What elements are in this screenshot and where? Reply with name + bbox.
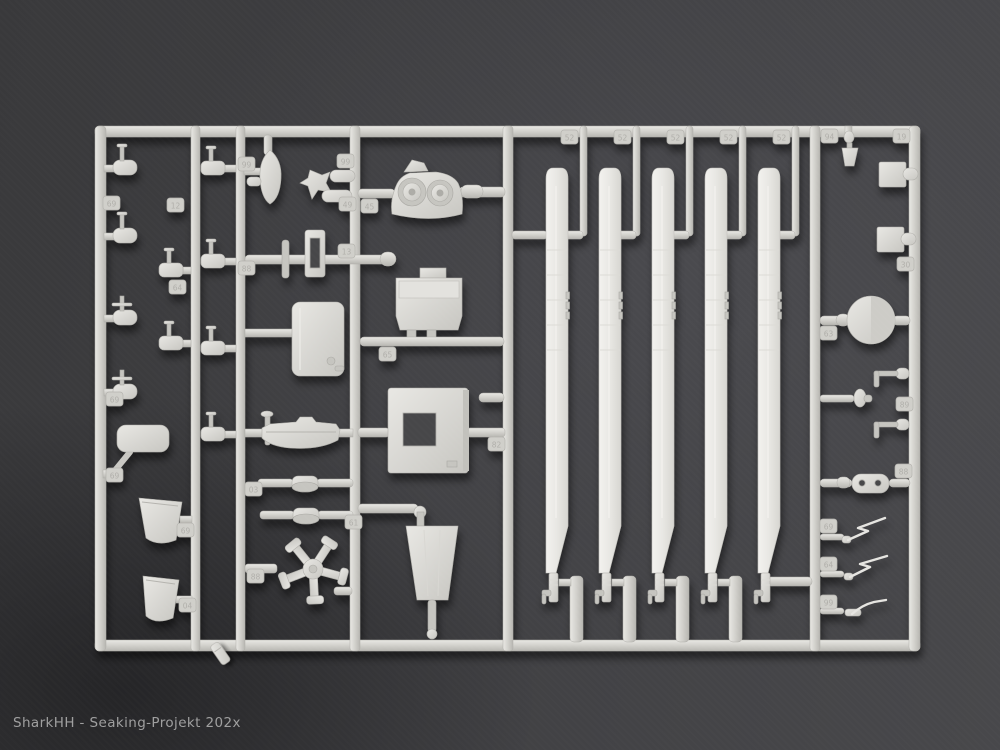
step-frame-part	[245, 230, 396, 278]
part-number-tab: 69	[103, 196, 120, 210]
part-number-tab: 13	[338, 244, 355, 258]
part-number-tab: 99	[337, 154, 354, 168]
svg-text:69: 69	[110, 472, 120, 481]
part-number-tab: 69	[106, 468, 123, 482]
svg-text:61: 61	[349, 519, 359, 528]
part-number-tab: 88	[238, 261, 255, 275]
part-number-tab: 52	[667, 130, 684, 144]
runner-d	[503, 126, 513, 651]
part-number-tab: 65	[379, 347, 396, 361]
part-number-tab: 64	[169, 280, 186, 294]
svg-text:88: 88	[251, 573, 261, 582]
sprue: 69 12 64 69 69 69 04 99 88 03 88 99 49 1…	[95, 126, 920, 651]
part-number-tab: 89	[896, 397, 913, 411]
svg-text:52: 52	[777, 134, 787, 143]
part-number-tab: 45	[361, 199, 378, 213]
part-number-tab: 99	[238, 157, 255, 171]
part-number-tab: 94	[821, 129, 838, 143]
part-number-tab: 19	[893, 129, 910, 143]
valve-part	[104, 212, 137, 243]
sprue-photo: 69 12 64 69 69 69 04 99 88 03 88 99 49 1…	[0, 0, 1000, 750]
part-number-tab: 04	[179, 598, 196, 612]
equipment-box-part	[360, 268, 504, 346]
svg-text:04: 04	[183, 602, 193, 611]
part-number-tab: 88	[895, 464, 912, 478]
runner-b	[236, 126, 245, 651]
svg-text:45: 45	[365, 203, 375, 212]
rotor-blade	[701, 168, 729, 604]
svg-text:64: 64	[824, 561, 834, 570]
part-number-tab: 88	[247, 569, 264, 583]
blade-bottom-runners	[559, 576, 812, 642]
plunger-part	[820, 389, 872, 407]
svg-text:65: 65	[383, 351, 393, 360]
part-number-tab: 30	[897, 257, 914, 271]
svg-text:82: 82	[492, 441, 502, 450]
svg-text:52: 52	[671, 134, 681, 143]
column-1-small-parts	[103, 144, 236, 621]
svg-text:12: 12	[171, 202, 181, 211]
svg-text:52: 52	[565, 134, 575, 143]
photo-canvas: { "scene": { "type": "photograph", "subj…	[0, 0, 1000, 750]
right-column-parts	[820, 126, 918, 616]
part-number-tab: 03	[245, 482, 262, 496]
valve-part	[104, 144, 137, 175]
svg-text:94: 94	[825, 133, 835, 142]
part-number-tab: 63	[820, 326, 837, 340]
svg-text:99: 99	[242, 161, 252, 170]
part-number-tab: 52	[561, 130, 578, 144]
rotor-blade	[595, 168, 623, 604]
svg-text:49: 49	[343, 201, 353, 210]
svg-text:30: 30	[901, 261, 911, 270]
part-number-tab: 82	[488, 437, 505, 451]
pulley-disc-part	[258, 476, 353, 492]
svg-text:69: 69	[107, 200, 117, 209]
pulley-disc-part	[260, 508, 353, 524]
part-number-tab: 61	[345, 515, 362, 529]
blade-gate-stub	[580, 126, 587, 236]
svg-text:03: 03	[249, 486, 259, 495]
valve-part	[159, 321, 191, 350]
part-number-tab: 69	[177, 523, 194, 537]
part-number-tab: 69	[106, 392, 123, 406]
part-number-tab: 52	[773, 130, 790, 144]
svg-text:99: 99	[824, 599, 834, 608]
svg-text:63: 63	[824, 330, 834, 339]
part-number-tab: 52	[720, 130, 737, 144]
rail-right	[909, 126, 920, 651]
svg-text:52: 52	[724, 134, 734, 143]
sprue-frame	[95, 126, 920, 651]
l-bracket-antenna-part	[874, 419, 909, 438]
part-number-tab: 64	[820, 557, 837, 571]
svg-text:88: 88	[899, 468, 909, 477]
valve-part	[201, 326, 236, 355]
svg-text:52: 52	[618, 134, 628, 143]
svg-text:69: 69	[181, 527, 191, 536]
rotor-blade	[542, 168, 570, 604]
part-number-tab: 69	[820, 519, 837, 533]
middle-column-parts	[358, 160, 505, 639]
part-number-tab: 12	[167, 198, 184, 212]
runner-e	[810, 126, 820, 651]
blade-gate-stub	[686, 126, 693, 236]
rotor-blade	[648, 168, 676, 604]
valve-part	[159, 248, 191, 277]
part-number-tab: 49	[339, 197, 356, 211]
sponson-hull-part	[245, 417, 353, 448]
runner-a	[191, 126, 200, 651]
svg-text:99: 99	[341, 158, 351, 167]
blade-gate-stub	[739, 126, 746, 236]
valve-part-crossbar	[104, 296, 137, 325]
blade-gate-stub	[633, 126, 640, 236]
svg-text:69: 69	[824, 523, 834, 532]
watermark-text: SharkHH - Seaking-Projekt 202x	[13, 715, 241, 731]
svg-text:13: 13	[342, 248, 352, 257]
twin-intake-fairing-part	[358, 160, 505, 219]
rotor-blade	[754, 168, 782, 604]
svg-text:19: 19	[897, 133, 907, 142]
part-number-tab: 99	[820, 595, 837, 609]
svg-text:64: 64	[173, 284, 183, 293]
trapezoid-tub-part	[358, 504, 458, 639]
valve-part	[201, 239, 236, 268]
l-bracket-antenna-part	[874, 368, 909, 387]
capsule-fitting	[330, 170, 355, 182]
valve-part	[201, 146, 236, 175]
gate-stub	[479, 393, 504, 402]
blade-gate-stub	[792, 126, 799, 236]
svg-text:88: 88	[242, 265, 252, 274]
valve-part	[201, 412, 236, 441]
svg-text:89: 89	[900, 401, 910, 410]
part-number-tab: 52	[614, 130, 631, 144]
cabin-door-panel-part	[245, 302, 344, 376]
svg-text:69: 69	[110, 396, 120, 405]
